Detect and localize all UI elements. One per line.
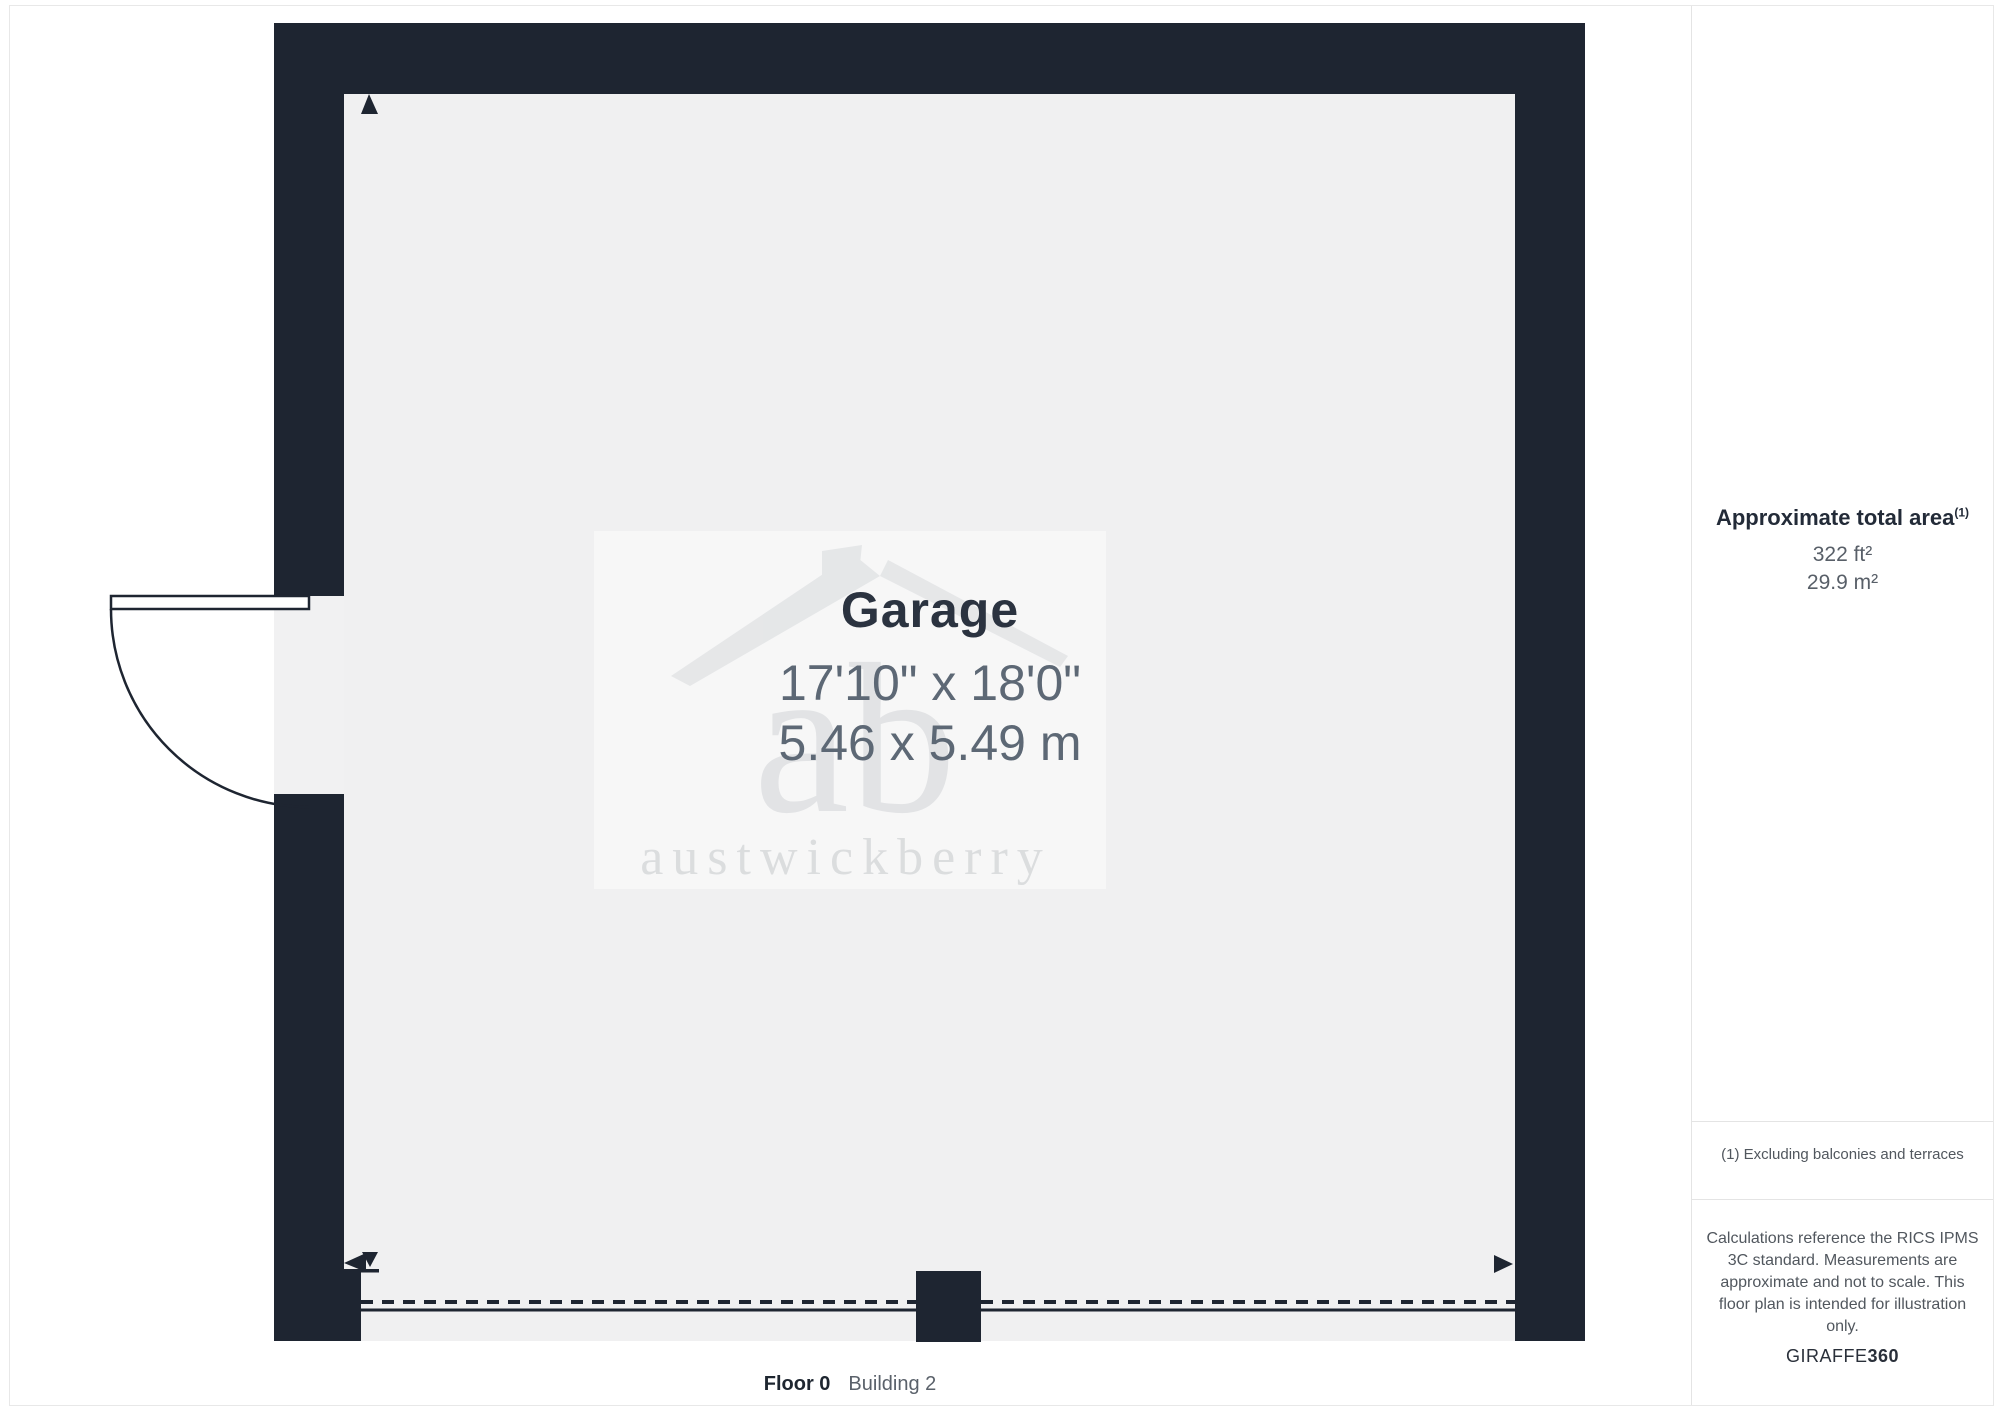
area-m: 29.9 m²: [1692, 569, 1993, 597]
total-area-values: 322 ft² 29.9 m²: [1692, 541, 1993, 597]
door-opening: [274, 596, 344, 794]
wall-left-upper: [274, 23, 344, 596]
garage-door-jamb-left: [344, 1269, 361, 1341]
sidebar-divider-2: [1692, 1199, 1993, 1200]
room-dims-imperial: 17'10" x 18'0": [779, 653, 1082, 713]
info-sidebar: Approximate total area(1) 322 ft² 29.9 m…: [1691, 6, 1993, 1405]
brand-name: GIRAFFE: [1786, 1346, 1868, 1366]
total-area-heading: Approximate total area(1): [1692, 505, 1993, 531]
disclaimer-text: Calculations reference the RICS IPMS 3C …: [1706, 1228, 1980, 1338]
wall-right: [1515, 23, 1585, 1341]
wall-left-lower: [274, 794, 344, 1341]
area-ft: 322 ft²: [1692, 541, 1993, 569]
room-dimensions: 17'10" x 18'0" 5.46 x 5.49 m: [779, 653, 1082, 773]
wall-top: [274, 23, 1585, 94]
brand-logo: GIRAFFE360: [1692, 1346, 1993, 1367]
room-label: Garage 17'10" x 18'0" 5.46 x 5.49 m: [779, 581, 1082, 773]
total-area-block: Approximate total area(1) 322 ft² 29.9 m…: [1692, 505, 1993, 597]
sidebar-divider-1: [1692, 1121, 1993, 1122]
floorplan-page: ab austwickberry Garage 17'10" x 18'0" 5…: [9, 5, 1994, 1406]
room-dims-metric: 5.46 x 5.49 m: [779, 713, 1082, 773]
total-area-footnote-marker: (1): [1954, 506, 1969, 520]
floor-label: Floor 0: [764, 1373, 831, 1395]
footnote-text: (1) Excluding balconies and terraces: [1692, 1146, 1993, 1163]
room-name: Garage: [779, 581, 1082, 639]
brand-suffix: 360: [1867, 1346, 1899, 1366]
plan-caption: Floor 0Building 2: [764, 1373, 937, 1396]
total-area-heading-text: Approximate total area: [1716, 505, 1954, 530]
building-label: Building 2: [848, 1373, 936, 1395]
garage-door-pillar: [916, 1271, 981, 1342]
